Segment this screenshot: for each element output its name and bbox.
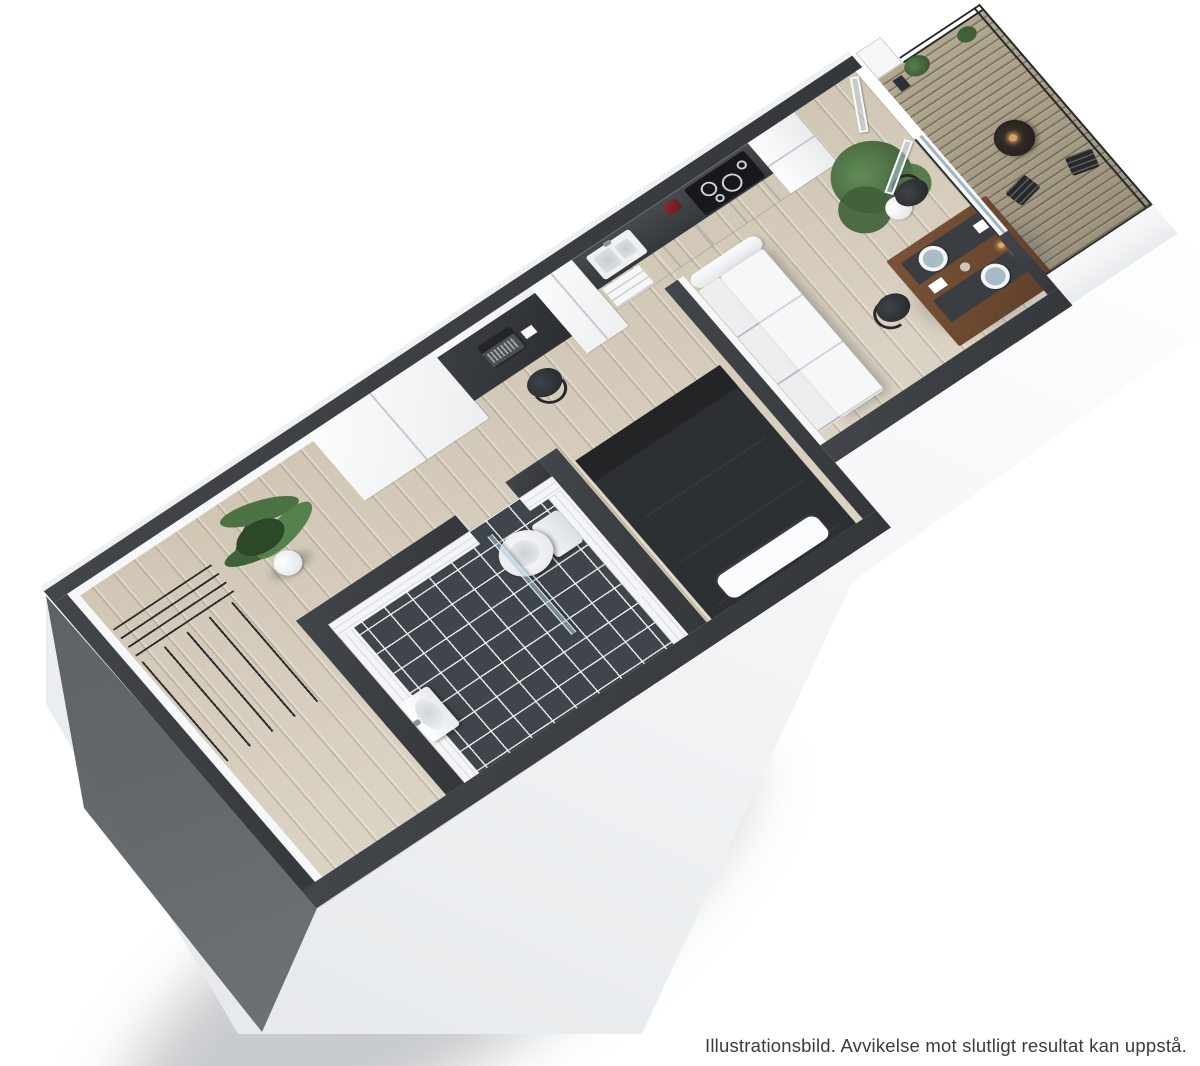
burner-ring: [735, 159, 750, 172]
caption: Illustrationsbild. Avvikelse mot slutlig…: [705, 1035, 1187, 1057]
burner-ring: [718, 170, 747, 195]
burner-ring: [714, 192, 727, 203]
floor-plan-illustration: Illustrationsbild. Avvikelse mot slutlig…: [0, 0, 1200, 1066]
drinking-glass: [958, 261, 973, 274]
candle-lantern: [1007, 133, 1019, 143]
